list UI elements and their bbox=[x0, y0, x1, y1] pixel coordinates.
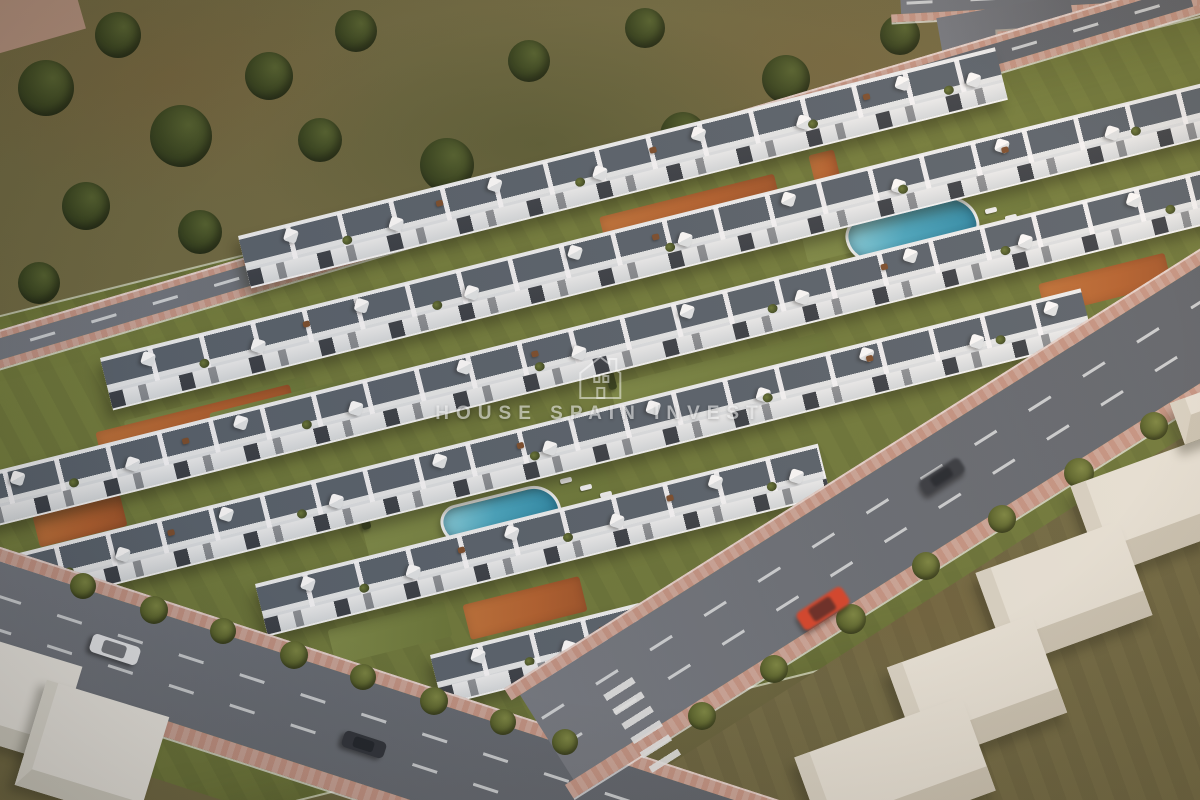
car bbox=[88, 633, 141, 667]
carb bbox=[917, 456, 967, 496]
watermark: HOUSE SPAIN INVEST bbox=[435, 352, 764, 425]
car bbox=[340, 730, 387, 760]
aerial-render: HOUSE SPAIN INVEST bbox=[0, 0, 1200, 800]
carb bbox=[795, 585, 852, 632]
house-logo-icon bbox=[572, 352, 628, 400]
watermark-text: HOUSE SPAIN INVEST bbox=[435, 403, 764, 425]
